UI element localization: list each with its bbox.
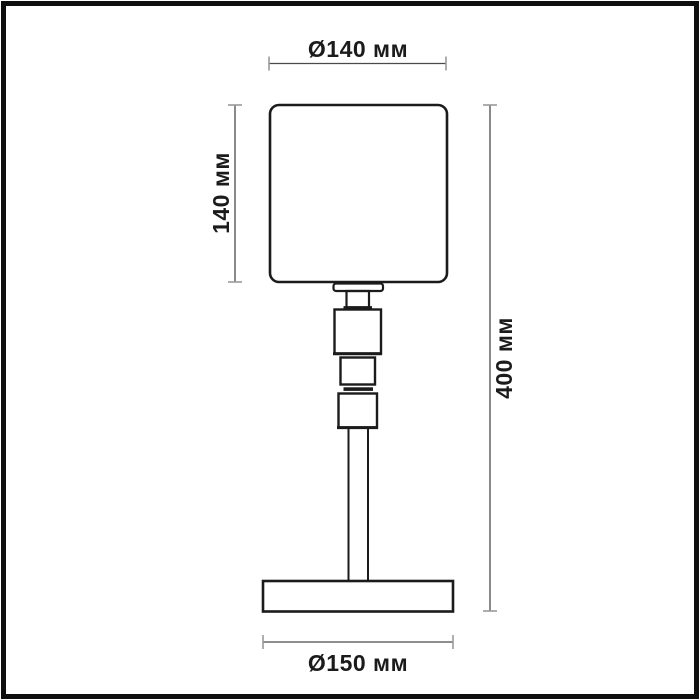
shade-height-label: 140 мм [208, 152, 234, 234]
lamp-dimension-diagram: Ø140 мм 140 мм 400 мм Ø150 мм [0, 0, 700, 700]
socket-upper-block [335, 310, 382, 354]
socket-lower-block [339, 394, 378, 428]
shade-holder-tab [334, 284, 384, 292]
shade-diameter-label: Ø140 мм [308, 36, 408, 62]
lampshade-outline [270, 105, 447, 282]
total-height-label: 400 мм [491, 317, 517, 399]
total-height-dimension: 400 мм [483, 105, 517, 611]
lamp-outline-group [263, 105, 453, 612]
base-diameter-dimension: Ø150 мм [263, 635, 453, 676]
socket-neck [347, 291, 370, 308]
lamp-stem [349, 428, 369, 581]
base-diameter-label: Ø150 мм [308, 650, 408, 676]
shade-height-dimension: 140 мм [208, 105, 242, 282]
socket-middle-block [341, 358, 376, 385]
lamp-line-drawing: Ø140 мм 140 мм 400 мм Ø150 мм [0, 0, 700, 700]
lamp-base [263, 581, 453, 612]
shade-diameter-dimension: Ø140 мм [269, 36, 446, 71]
socket-connector-bar [344, 387, 374, 391]
